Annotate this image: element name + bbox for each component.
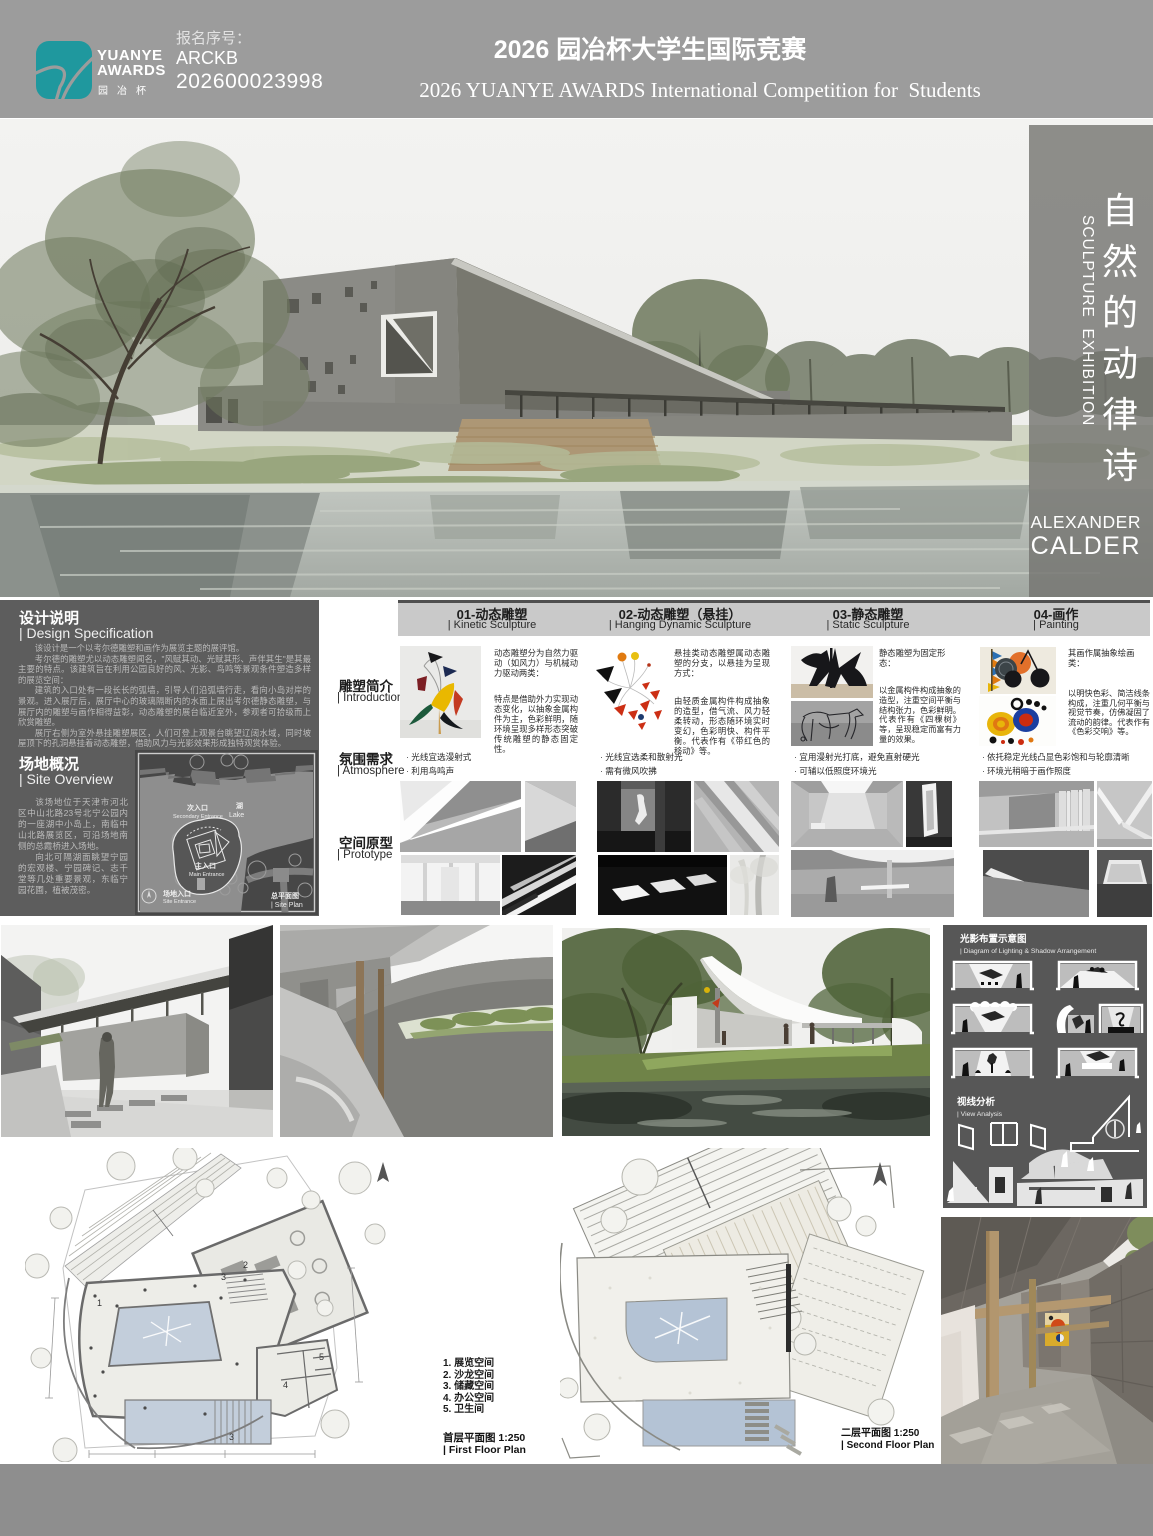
svg-text:的: 的 bbox=[1102, 293, 1138, 333]
svg-text:SCULPTURE EXHIBITION: SCULPTURE EXHIBITION bbox=[1079, 215, 1096, 426]
svg-text:Lake: Lake bbox=[229, 812, 244, 819]
svg-text:3: 3 bbox=[229, 1432, 234, 1442]
svg-text:湖: 湖 bbox=[236, 801, 243, 810]
svg-text:场地入口: 场地入口 bbox=[163, 889, 191, 898]
svg-text:ALEXANDER: ALEXANDER bbox=[1030, 512, 1141, 532]
svg-text:CALDER: CALDER bbox=[1031, 532, 1141, 560]
svg-text:动: 动 bbox=[1102, 344, 1138, 384]
svg-text:自: 自 bbox=[1102, 191, 1138, 231]
svg-text:律: 律 bbox=[1102, 395, 1138, 435]
svg-text:光影布置示意图: 光影布置示意图 bbox=[959, 933, 1027, 945]
svg-text:| View Analysis: | View Analysis bbox=[957, 1111, 1003, 1118]
svg-text:Secondary Entrance: Secondary Entrance bbox=[173, 814, 223, 820]
svg-text:总平面图: 总平面图 bbox=[271, 891, 299, 900]
svg-text:4: 4 bbox=[283, 1380, 288, 1390]
svg-text:| Diagram of Lighting & Shadow: | Diagram of Lighting & Shadow Arrangeme… bbox=[960, 948, 1096, 955]
svg-text:次入口: 次入口 bbox=[187, 803, 208, 812]
svg-text:诗: 诗 bbox=[1102, 446, 1138, 486]
svg-text:5: 5 bbox=[319, 1352, 324, 1362]
svg-text:主入口: 主入口 bbox=[195, 861, 216, 870]
svg-text:1: 1 bbox=[97, 1298, 102, 1308]
svg-text:Site Entrance: Site Entrance bbox=[163, 899, 196, 905]
svg-text:视线分析: 视线分析 bbox=[957, 1096, 996, 1108]
svg-text:2: 2 bbox=[243, 1260, 248, 1270]
svg-text:| Site Plan: | Site Plan bbox=[271, 902, 303, 909]
svg-text:3: 3 bbox=[221, 1272, 226, 1282]
svg-text:然: 然 bbox=[1102, 242, 1138, 282]
svg-text:Main Entrance: Main Entrance bbox=[189, 872, 224, 878]
